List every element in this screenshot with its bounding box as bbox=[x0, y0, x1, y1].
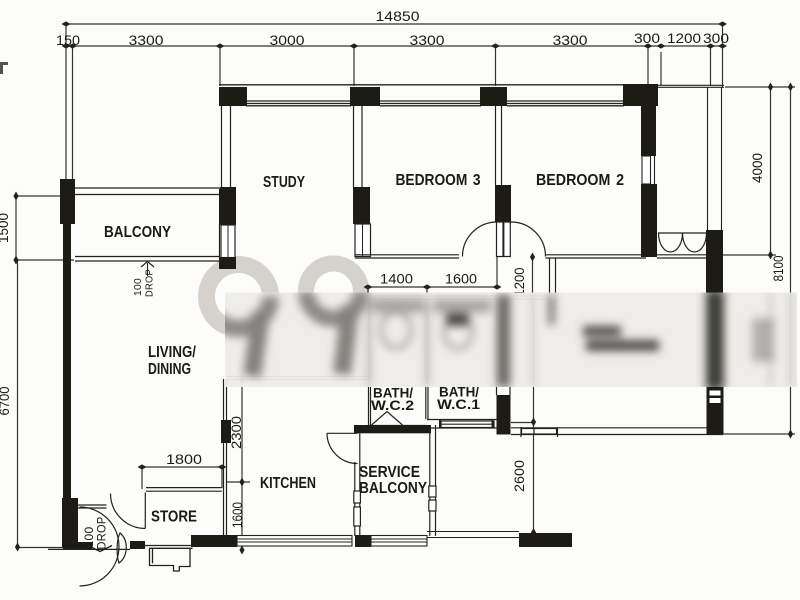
svg-text:300: 300 bbox=[703, 30, 729, 46]
svg-text:4000: 4000 bbox=[749, 153, 765, 183]
svg-text:1500: 1500 bbox=[0, 213, 11, 243]
svg-text:150: 150 bbox=[56, 32, 80, 48]
svg-text:1200: 1200 bbox=[511, 267, 527, 296]
svg-text:1800: 1800 bbox=[166, 451, 202, 467]
svg-text:3300: 3300 bbox=[129, 32, 164, 48]
svg-text:BEDROOM 2: BEDROOM 2 bbox=[536, 172, 624, 189]
svg-text:BALCONY: BALCONY bbox=[104, 224, 171, 241]
svg-text:8100: 8100 bbox=[770, 255, 786, 281]
svg-text:DROP: DROP bbox=[97, 516, 109, 549]
svg-text:BEDROOM 3: BEDROOM 3 bbox=[396, 172, 481, 189]
svg-text:DINING: DINING bbox=[148, 361, 191, 378]
svg-text:KITCHEN: KITCHEN bbox=[260, 475, 316, 492]
svg-text:6700: 6700 bbox=[0, 386, 12, 415]
svg-text:3300: 3300 bbox=[553, 32, 588, 48]
svg-text:2600: 2600 bbox=[511, 460, 527, 492]
svg-text:1600: 1600 bbox=[445, 271, 477, 287]
svg-text:STORE: STORE bbox=[151, 509, 197, 526]
svg-text:100: 100 bbox=[133, 278, 144, 296]
svg-text:1200: 1200 bbox=[667, 30, 701, 46]
svg-text:3000: 3000 bbox=[270, 32, 305, 48]
svg-text:DROP: DROP bbox=[145, 269, 156, 297]
svg-text:14850: 14850 bbox=[376, 8, 420, 24]
svg-text:W.C.1: W.C.1 bbox=[437, 397, 481, 412]
svg-text:1600: 1600 bbox=[229, 502, 245, 528]
svg-text:STUDY: STUDY bbox=[263, 174, 305, 191]
svg-text:W.C.2: W.C.2 bbox=[371, 398, 414, 413]
svg-text:LIVING/: LIVING/ bbox=[148, 344, 196, 361]
svg-text:BALCONY: BALCONY bbox=[359, 480, 427, 497]
svg-text:SERVICE: SERVICE bbox=[359, 464, 420, 481]
svg-text:300: 300 bbox=[634, 30, 660, 46]
svg-text:1400: 1400 bbox=[380, 271, 413, 287]
svg-text:100: 100 bbox=[84, 527, 96, 548]
svg-text:3300: 3300 bbox=[410, 32, 445, 48]
